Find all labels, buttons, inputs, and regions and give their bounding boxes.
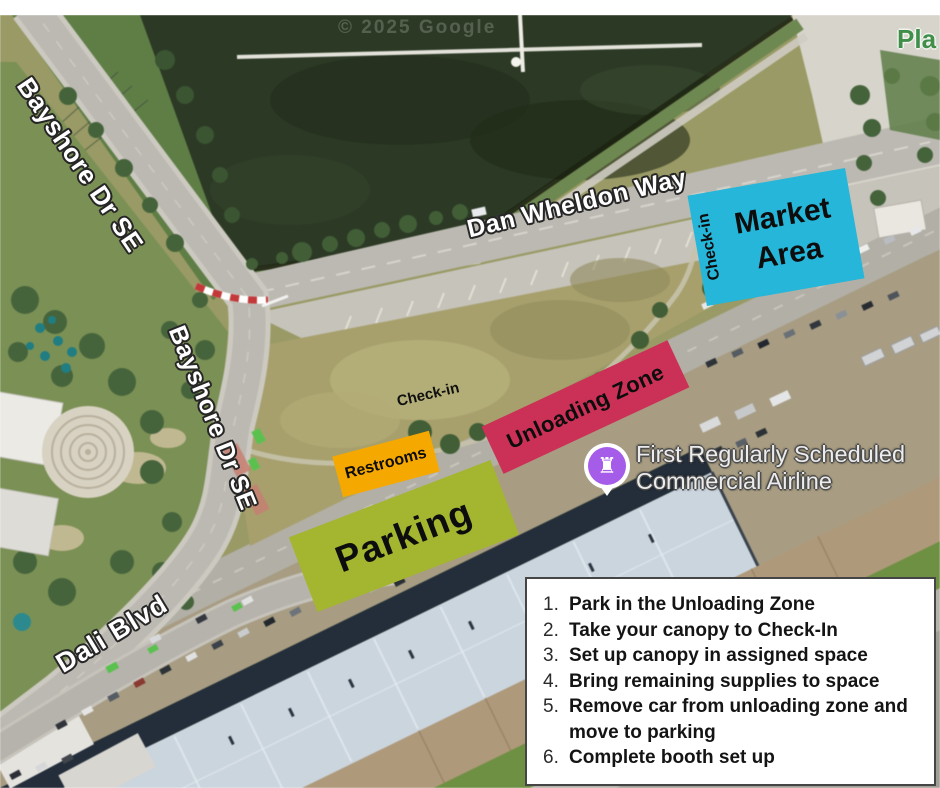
step-number: 6. xyxy=(543,745,569,771)
step-text: Complete booth set up xyxy=(569,745,775,771)
landmark-pin-tail xyxy=(600,486,614,496)
step-text: Remove car from unloading zone and move … xyxy=(569,694,922,745)
landmark-label: First Regularly Scheduled Commercial Air… xyxy=(636,441,905,495)
step-text: Park in the Unloading Zone xyxy=(569,592,815,618)
instruction-step: 4. Bring remaining supplies to space xyxy=(543,669,922,695)
instruction-step: 2. Take your canopy to Check-In xyxy=(543,618,922,644)
step-text: Take your canopy to Check-In xyxy=(569,618,838,644)
map-copyright-watermark: © 2025 Google xyxy=(338,17,496,39)
step-number: 5. xyxy=(543,694,569,720)
landmark-label-line2: Commercial Airline xyxy=(636,468,905,495)
place-label-cutoff: Pla xyxy=(897,24,936,55)
setup-instructions-box: 1. Park in the Unloading Zone 2. Take yo… xyxy=(525,577,936,786)
instruction-step: 1. Park in the Unloading Zone xyxy=(543,592,922,618)
instruction-step: 3. Set up canopy in assigned space xyxy=(543,643,922,669)
step-number: 2. xyxy=(543,618,569,644)
step-number: 1. xyxy=(543,592,569,618)
landmark-pin: ♜ xyxy=(584,443,630,489)
landmark-pin-badge: ♜ xyxy=(588,447,626,485)
step-number: 4. xyxy=(543,669,569,695)
zone-restrooms-label: Restrooms xyxy=(343,444,428,483)
step-text: Bring remaining supplies to space xyxy=(569,669,879,695)
instruction-step: 5. Remove car from unloading zone and mo… xyxy=(543,694,922,745)
landmark-label-line1: First Regularly Scheduled xyxy=(636,441,905,468)
top-white-margin xyxy=(0,0,940,15)
step-text: Set up canopy in assigned space xyxy=(569,643,868,669)
step-number: 3. xyxy=(543,643,569,669)
rook-landmark-icon: ♜ xyxy=(597,455,617,477)
event-map-graphic: © 2025 Google Bayshore Dr SE Bayshore Dr… xyxy=(0,0,940,788)
instruction-step: 6. Complete booth set up xyxy=(543,745,922,771)
